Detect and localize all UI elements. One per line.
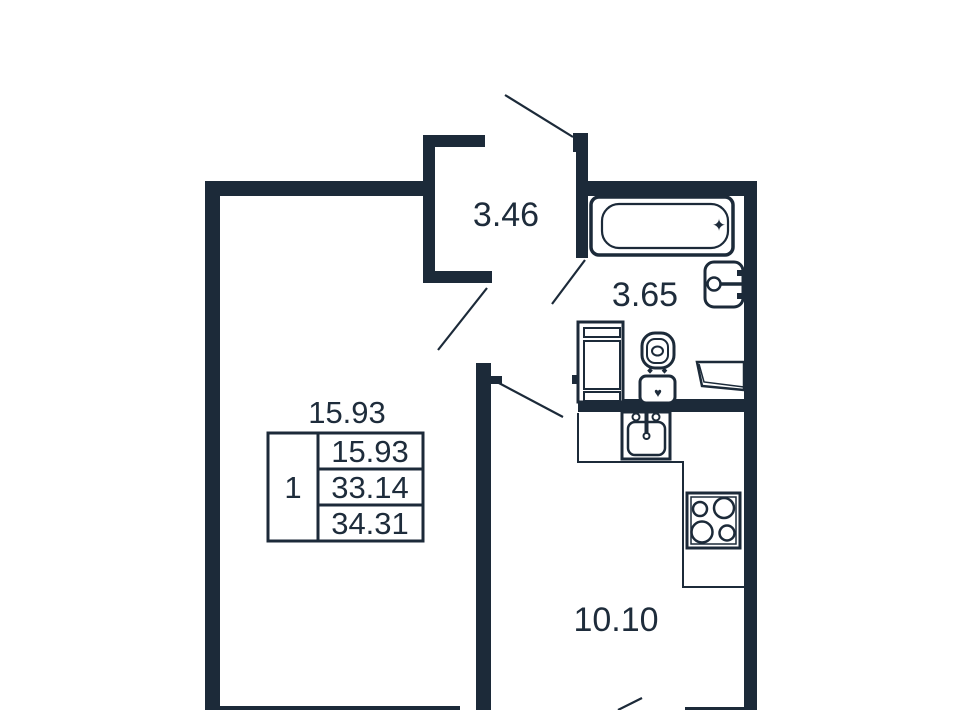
wall-left xyxy=(205,181,220,710)
living-room-area-label: 15.93 xyxy=(308,395,386,430)
bathroom-sink-mount-bottom xyxy=(737,293,743,299)
balcony-door-leaf xyxy=(618,698,642,710)
kitchen-sink xyxy=(622,412,670,459)
stove xyxy=(687,493,740,548)
bathtub-faucet-icon: ✦ xyxy=(712,216,726,235)
wall-hall-niche-top-stub xyxy=(423,135,485,147)
kitchen-area-label: 10.10 xyxy=(573,601,658,639)
apartment-info-table: 1 15.93 33.14 34.31 xyxy=(268,433,423,541)
wall-living-top xyxy=(205,181,435,196)
hallway-area-label: 3.46 xyxy=(473,196,539,234)
toilet-tank-mark-icon: ♥ xyxy=(654,385,662,400)
bathroom-corner-fixture xyxy=(697,362,744,390)
wall-bathroom-left xyxy=(576,150,588,258)
bathroom-sink-faucet-knob xyxy=(708,278,721,291)
wall-bottom-left-sliver xyxy=(220,706,460,710)
wall-right xyxy=(744,181,757,710)
floor-plan: ✦ ♥ xyxy=(0,0,960,710)
living-area-value: 15.93 xyxy=(331,434,409,469)
bathroom-sink-mount-top xyxy=(737,270,743,276)
bathroom-door-leaf xyxy=(552,260,585,304)
washing-machine xyxy=(572,322,623,402)
bathroom-sink xyxy=(705,262,744,307)
apartment-area-value: 33.14 xyxy=(331,470,409,505)
room-count-value: 1 xyxy=(284,470,301,505)
entrance-door-leaf xyxy=(505,95,573,137)
wall-hall-niche-bottom-stub xyxy=(423,271,492,283)
washing-machine-hookup xyxy=(572,375,578,384)
floor-plan-canvas: ✦ ♥ xyxy=(0,0,960,710)
living-room-door-leaf xyxy=(438,288,487,350)
wall-entry-jamb xyxy=(573,133,588,152)
bathtub: ✦ xyxy=(591,197,733,255)
total-area-value: 34.31 xyxy=(331,506,409,541)
bathroom-area-label: 3.65 xyxy=(612,276,678,314)
kitchen-sink-faucet-base xyxy=(644,433,650,439)
wall-living-kitchen-divider xyxy=(476,363,491,710)
kitchen-door-leaf xyxy=(497,382,563,417)
kitchen-sink-faucet xyxy=(645,413,649,435)
toilet: ♥ xyxy=(640,333,675,403)
wall-bathroom-top xyxy=(576,181,757,196)
wall-hall-niche-vertical xyxy=(423,135,435,283)
